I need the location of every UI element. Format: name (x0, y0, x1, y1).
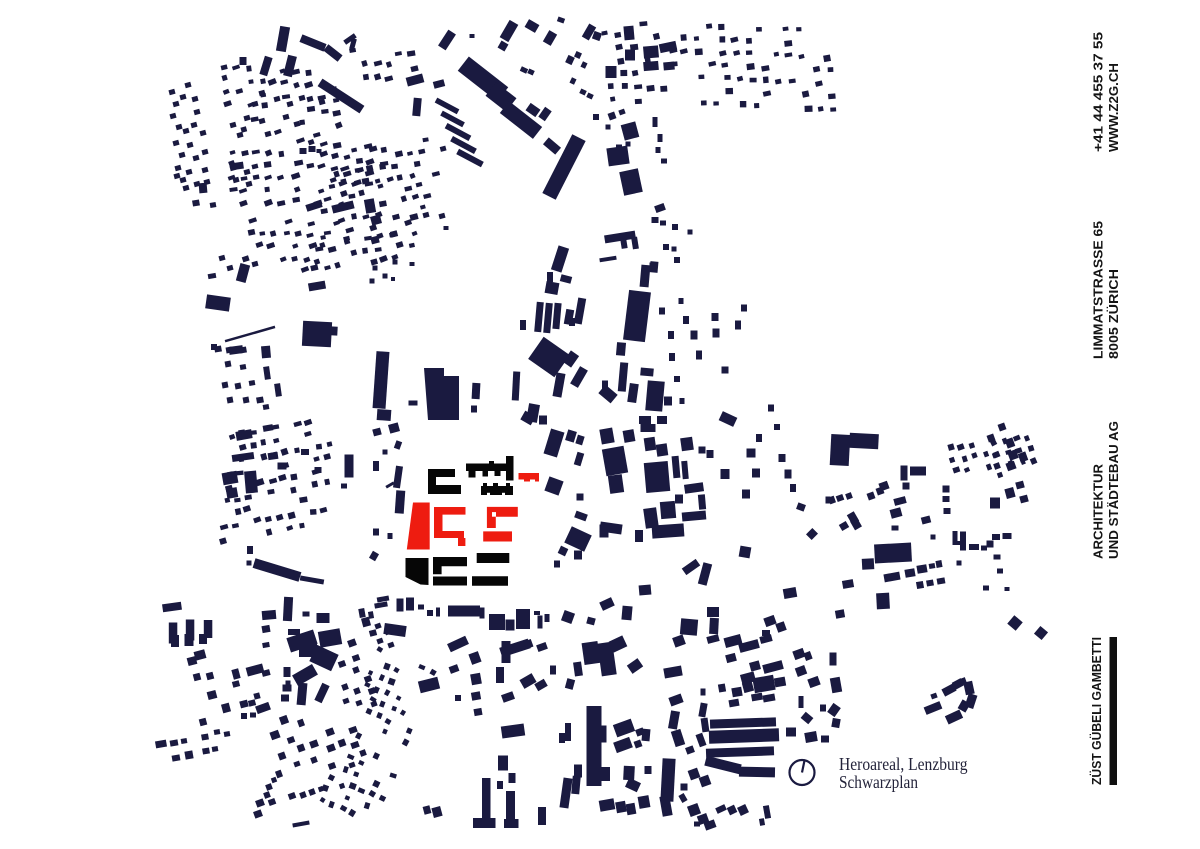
svg-text:+41 44 455 37 55: +41 44 455 37 55 (1091, 32, 1106, 152)
svg-text:UND STÄDTEBAU AG: UND STÄDTEBAU AG (1106, 421, 1121, 559)
svg-text:Schwarzplan: Schwarzplan (839, 772, 918, 792)
svg-text:8005 ZÜRICH: 8005 ZÜRICH (1106, 269, 1121, 359)
svg-text:ZÜST GÜBELI GAMBETTI: ZÜST GÜBELI GAMBETTI (1089, 637, 1104, 785)
svg-text:Heroareal, Lenzburg: Heroareal, Lenzburg (839, 754, 968, 774)
svg-text:WWW.Z2G.CH: WWW.Z2G.CH (1106, 63, 1121, 152)
svg-text:ARCHITEKTUR: ARCHITEKTUR (1091, 463, 1106, 559)
svg-text:LIMMATSTRASSE 65: LIMMATSTRASSE 65 (1091, 221, 1106, 359)
